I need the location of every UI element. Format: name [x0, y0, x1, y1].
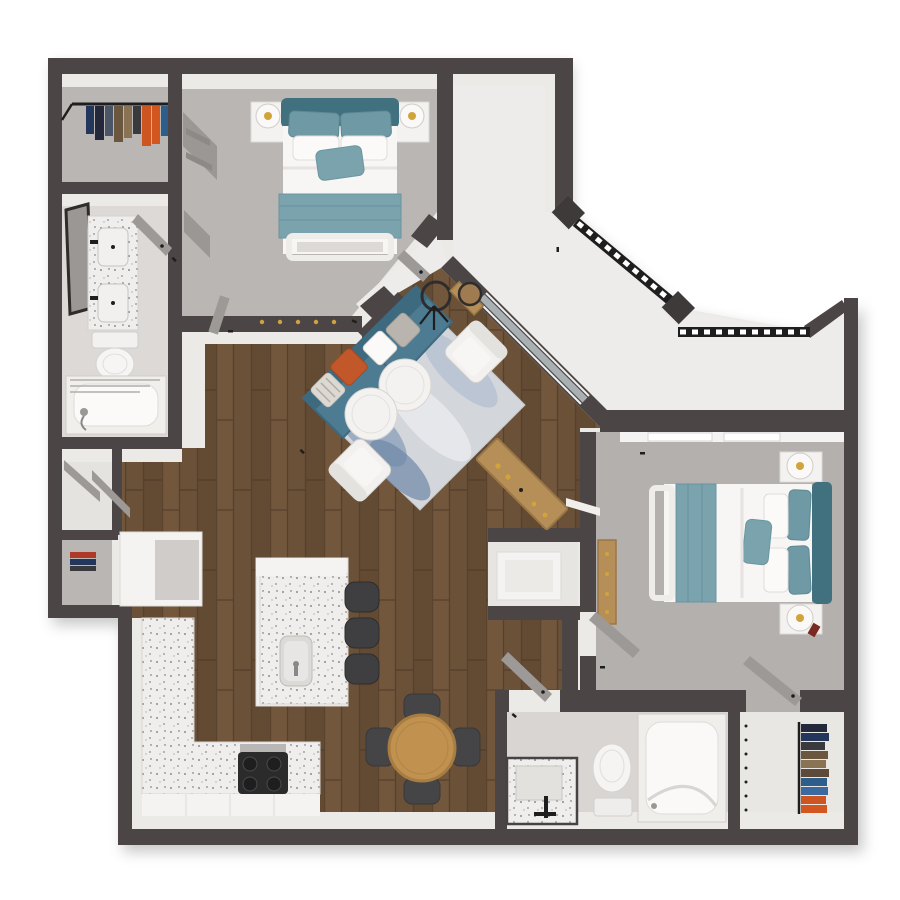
hanging-clothes	[801, 778, 827, 786]
door-bedroom-1	[397, 250, 430, 282]
bed1-pillow-white	[341, 136, 387, 160]
bed1-pillow-teal	[288, 111, 339, 140]
hanging-clothes	[133, 106, 141, 134]
peg	[745, 767, 748, 770]
pillow-stripes	[316, 378, 340, 402]
mark	[600, 666, 605, 669]
mark	[512, 713, 517, 718]
gold-dot	[296, 320, 300, 324]
walk-in-closet-2	[745, 722, 830, 814]
dresser-knob	[605, 572, 609, 576]
floor-living-kitchen-wood	[122, 268, 601, 812]
hanging-clothes	[801, 805, 827, 813]
wall-bedroom2-window	[600, 410, 844, 432]
lamp-bulb	[264, 112, 272, 120]
floor-bathroom-1	[62, 194, 168, 437]
wall-hall-closet-divider	[62, 530, 118, 540]
coffee-table	[345, 388, 397, 440]
throw-folds	[688, 484, 702, 602]
dining-chair	[404, 694, 440, 720]
hanging-clothes	[801, 787, 828, 795]
gold-dot	[314, 320, 318, 324]
wall-nook-bottom	[488, 606, 580, 620]
armchair-back	[326, 461, 369, 504]
tub-shower	[66, 376, 166, 434]
bar-stool	[345, 618, 379, 648]
floor-entry-balcony	[453, 86, 844, 416]
sofa-pillow-gray	[385, 312, 422, 349]
glass-pane	[482, 297, 585, 400]
faucet	[90, 296, 98, 300]
tub-basin	[646, 722, 718, 814]
nightstand	[780, 604, 822, 634]
railing-balusters	[578, 223, 670, 300]
wall-face	[132, 812, 844, 829]
lamp-bulb	[796, 614, 804, 622]
desk	[497, 552, 561, 600]
bed1-pillow-teal	[340, 111, 391, 140]
bed2-pillow-white	[764, 548, 788, 592]
door-hall-closet	[64, 460, 100, 502]
armchair-seat	[451, 336, 493, 378]
bed1-accent-pillow	[315, 145, 365, 181]
mark	[352, 319, 358, 323]
door-bedroom-1-closet	[208, 295, 229, 334]
door-handle	[541, 690, 545, 694]
cabinet-faces	[142, 794, 320, 816]
dining-area	[366, 694, 480, 804]
vanity-2	[507, 758, 577, 824]
post-highlight	[551, 213, 568, 230]
area-rug	[318, 305, 525, 510]
armchair-back	[467, 318, 510, 361]
folded-clothes	[70, 566, 96, 571]
bed2-headboard	[812, 482, 832, 604]
shower-hose	[81, 416, 86, 430]
wall-shelf	[186, 128, 210, 146]
wall-bedroom2-left-upper	[580, 432, 596, 612]
burner	[267, 777, 281, 791]
table-lamp	[256, 104, 280, 128]
entry-console-table	[450, 282, 483, 315]
sofa-pillow-orange	[329, 347, 369, 387]
armchair-seat	[342, 446, 384, 488]
dining-chair	[366, 728, 394, 766]
floor-bedroom-1	[182, 88, 437, 316]
wall-face	[545, 72, 555, 212]
fridge-top	[155, 540, 199, 600]
doors	[64, 214, 802, 706]
wall-face	[132, 618, 142, 812]
island-end-cap	[256, 558, 346, 576]
shower-fixture	[651, 803, 657, 809]
dresser-knob	[605, 552, 609, 556]
wall-bottom	[118, 829, 858, 845]
toilet-bowl	[593, 744, 631, 792]
bed1-bench	[289, 236, 391, 258]
window-pane	[724, 433, 780, 441]
sofa-pillow-white	[362, 330, 399, 367]
toilet-tank	[92, 332, 138, 348]
hanging-clothes	[152, 106, 160, 144]
lamp-tripod	[420, 306, 448, 330]
sliding-closet-door	[184, 210, 210, 258]
bedroom-1	[183, 98, 429, 324]
window-pane	[648, 433, 712, 441]
bed2-pillow-white	[764, 494, 788, 538]
peg	[745, 795, 748, 798]
armchair-2	[326, 436, 394, 504]
hall-closets	[70, 552, 96, 571]
peg	[745, 739, 748, 742]
door-closet-2	[743, 656, 802, 706]
wall-bath2-closet2-divider	[728, 712, 740, 829]
hanging-clothes	[142, 106, 151, 146]
bed1-mattress	[283, 126, 397, 254]
pillow-base	[310, 372, 347, 409]
floor-hall-closet-a	[62, 462, 112, 530]
nightstand-decor	[808, 623, 821, 637]
wall-diagonal-glass	[441, 256, 613, 428]
dresser-knob	[605, 610, 609, 614]
floor-bedroom-2	[596, 432, 844, 712]
console-decor	[543, 513, 548, 518]
wall-shelf	[566, 498, 600, 516]
sofa-pillow-striped	[310, 372, 347, 409]
bathroom-2	[507, 714, 726, 824]
bedroom2-window	[620, 432, 844, 442]
sink-basin	[284, 641, 308, 681]
hanging-clothes	[86, 106, 94, 134]
toilet-tank	[594, 798, 632, 816]
wall-top	[48, 58, 567, 74]
toilet-bowl	[96, 348, 134, 380]
floor-desk-nook	[488, 542, 578, 606]
faucet	[544, 796, 548, 818]
bed2-pillow-teal	[787, 545, 811, 594]
desk-top-inset	[505, 560, 553, 592]
wall-nook-top	[488, 528, 580, 542]
round-mirror	[459, 283, 481, 305]
wall-face	[62, 74, 168, 87]
wall-diagonal-stub	[358, 292, 408, 342]
living-room	[303, 282, 568, 530]
vanity-sink	[98, 284, 128, 322]
wall-balcony-return	[804, 300, 848, 338]
bed2-mattress	[664, 484, 812, 602]
peg	[745, 809, 748, 812]
door-handle	[419, 270, 423, 274]
gold-dot	[332, 320, 336, 324]
bar-stool	[345, 654, 379, 684]
wall-step-left	[48, 605, 132, 618]
mark	[172, 257, 177, 262]
wall-bedroom1-right	[437, 58, 453, 240]
toilet-seat	[600, 750, 624, 782]
console-decor	[495, 463, 500, 468]
hanging-clothes	[105, 106, 113, 136]
nightstand	[251, 102, 285, 142]
wall-face	[182, 74, 437, 89]
floor-plan-svg	[0, 0, 900, 900]
lamp-bulb	[408, 112, 416, 120]
door-handle	[791, 694, 795, 698]
bed2-throw-blanket	[676, 484, 716, 602]
burner	[267, 757, 281, 771]
hanging-clothes	[801, 796, 826, 804]
console-top	[476, 438, 568, 530]
armchair-body	[442, 318, 510, 386]
bed1-throw-blanket	[279, 194, 401, 238]
lamp-bulb	[796, 462, 804, 470]
hanging-clothes	[801, 760, 826, 768]
dresser-knob	[605, 592, 609, 596]
hanging-clothes	[801, 751, 828, 759]
burner	[243, 757, 257, 771]
sofa	[303, 286, 452, 438]
wall-right	[844, 298, 858, 845]
wall-left	[48, 58, 62, 618]
table-lamp	[787, 453, 813, 479]
wall-bathroom1-bottom	[48, 437, 182, 449]
entry-console	[450, 282, 483, 315]
table-ring	[396, 722, 448, 774]
armchair-body	[326, 436, 394, 504]
rug-pattern	[412, 322, 508, 418]
vanity-mirror	[516, 766, 562, 800]
glass-frame	[478, 301, 581, 404]
folded-clothes	[70, 552, 96, 558]
console-decor-dark	[519, 488, 523, 492]
post-highlight	[661, 308, 678, 325]
plan-shadow	[48, 58, 858, 845]
console-decor	[505, 474, 510, 479]
rug-pattern	[377, 367, 483, 473]
hanging-clothes	[801, 724, 827, 732]
bed2-bench	[652, 488, 672, 598]
sink-drain	[111, 245, 115, 249]
island-sink	[280, 636, 312, 686]
floor-walk-in-closet-1	[62, 74, 168, 182]
coffee-table	[379, 359, 431, 411]
round-dining-table	[389, 715, 455, 781]
hanging-clothes	[161, 106, 168, 136]
wall-bedroom1-diagonal-lower	[360, 286, 396, 318]
wall-bedroom2-left-lower	[580, 656, 596, 712]
table-lamp	[787, 605, 813, 631]
kitchen	[120, 532, 379, 816]
wall-face	[182, 332, 362, 344]
sliding-glass-door	[478, 293, 589, 404]
vanity-sink	[98, 228, 128, 266]
island-counter	[260, 574, 348, 704]
tub-basin	[74, 384, 158, 426]
rod-bracket	[62, 104, 72, 120]
walk-in-closet-1	[62, 104, 168, 146]
hanging-clothes	[124, 106, 132, 138]
wall-closet1-right	[168, 58, 182, 448]
bathroom-1	[66, 204, 166, 434]
wall-bedroom1-diagonal-upper	[411, 214, 445, 248]
arc-floor-lamp	[422, 282, 450, 310]
mark	[640, 452, 645, 455]
coffee-table-ring	[386, 366, 424, 404]
sink-drain	[111, 301, 115, 305]
wall-face	[453, 72, 555, 86]
mark	[557, 247, 560, 252]
cabinet-seams	[186, 794, 274, 816]
kitchen-l-counter	[142, 618, 320, 794]
door-hall-closet	[92, 470, 130, 518]
table-lamp	[400, 104, 424, 128]
door-handle	[160, 244, 164, 248]
door-bathroom-2	[501, 652, 552, 702]
faucet	[90, 240, 98, 244]
railing-post	[661, 291, 695, 325]
sofa-backrest	[303, 286, 428, 410]
peg	[745, 725, 748, 728]
wall-faces	[62, 72, 844, 829]
bed1-pillow-white	[293, 136, 339, 160]
nightstand	[395, 102, 429, 142]
tub-shower-2	[638, 714, 726, 822]
double-vanity-counter	[88, 216, 138, 330]
peg	[745, 753, 748, 756]
floor-walk-in-closet-2	[740, 712, 844, 829]
nightstand	[780, 452, 822, 482]
door-bedroom-2	[589, 612, 640, 658]
bedroom-2	[652, 452, 832, 637]
burner	[243, 777, 257, 791]
bed2-pillow-teal	[787, 489, 812, 540]
gas-cooktop	[238, 752, 288, 794]
desk-nook	[497, 552, 561, 600]
hanging-clothes	[114, 106, 123, 142]
hanging-clothes	[801, 733, 829, 741]
walls	[48, 58, 858, 845]
floors	[62, 74, 844, 829]
mark	[300, 449, 305, 454]
gold-dot	[278, 320, 282, 324]
cooktop-vent	[240, 744, 286, 752]
sofa-cushion-seam	[368, 347, 396, 376]
floor-bedroom1-door-wedge	[356, 230, 447, 320]
toilet-seat	[103, 354, 127, 374]
wall-closet1-bath1-divider	[62, 182, 168, 194]
bedroom2-storage	[566, 498, 616, 624]
hanging-clothes	[801, 769, 829, 777]
console-decor	[532, 502, 537, 507]
sliding-closet-door	[183, 112, 217, 180]
gold-dot	[260, 320, 264, 324]
throw-folds	[279, 206, 401, 220]
console-table	[476, 438, 568, 530]
wall-hall-closet-right	[112, 449, 122, 535]
wall-nook-to-bath2	[562, 620, 578, 690]
glass-frame	[486, 293, 589, 396]
shelf-peg-column	[745, 725, 748, 812]
bar-stool	[345, 582, 379, 612]
faucet-stem	[294, 664, 298, 676]
shower-curtain	[648, 786, 716, 806]
wall-bedroom1-bottom	[182, 316, 362, 332]
armchair-1	[442, 318, 510, 386]
dining-chair	[404, 778, 440, 804]
railing-post	[551, 196, 585, 230]
folded-clothes	[70, 559, 96, 565]
bed2-accent-pillow	[742, 519, 772, 565]
bed1-headboard	[281, 98, 399, 128]
wall-kitchen-left	[118, 618, 132, 845]
coffee-table-ring	[352, 395, 390, 433]
wall-entry-right	[555, 58, 573, 213]
railing-diagonal	[576, 222, 672, 302]
hanging-clothes	[95, 106, 104, 140]
rug-pattern	[360, 430, 439, 509]
wall-face	[62, 194, 168, 206]
door-stop-marks	[172, 247, 645, 718]
window-sill	[620, 432, 844, 442]
wall-decor-lights	[260, 320, 336, 324]
fridge-pantry-unit	[120, 532, 202, 606]
dining-chair	[452, 728, 480, 766]
mark	[228, 330, 233, 333]
wall-bath2-top-c	[800, 690, 844, 712]
dresser	[598, 540, 616, 624]
wall-face	[62, 449, 182, 462]
door-bathroom-1	[132, 214, 172, 256]
bed1-bench-seat	[297, 242, 383, 252]
floor-bathroom-2	[507, 712, 728, 829]
island-faucet	[293, 661, 299, 667]
framed-mirror	[66, 204, 92, 314]
shower-fixture	[80, 408, 88, 416]
shower-glass	[70, 380, 160, 392]
wall-bath2-left	[495, 690, 507, 829]
faucet-handlebar	[534, 812, 556, 816]
balcony-railings	[551, 196, 810, 332]
floor-laundry-closet	[62, 540, 112, 605]
wall-shelf	[186, 152, 212, 171]
hanging-clothes	[801, 742, 825, 750]
rug-pattern	[322, 382, 418, 478]
wall-bath2-top-a	[495, 690, 509, 712]
peg	[745, 781, 748, 784]
island-base	[256, 558, 348, 706]
wall-bath2-top-b	[560, 690, 746, 712]
